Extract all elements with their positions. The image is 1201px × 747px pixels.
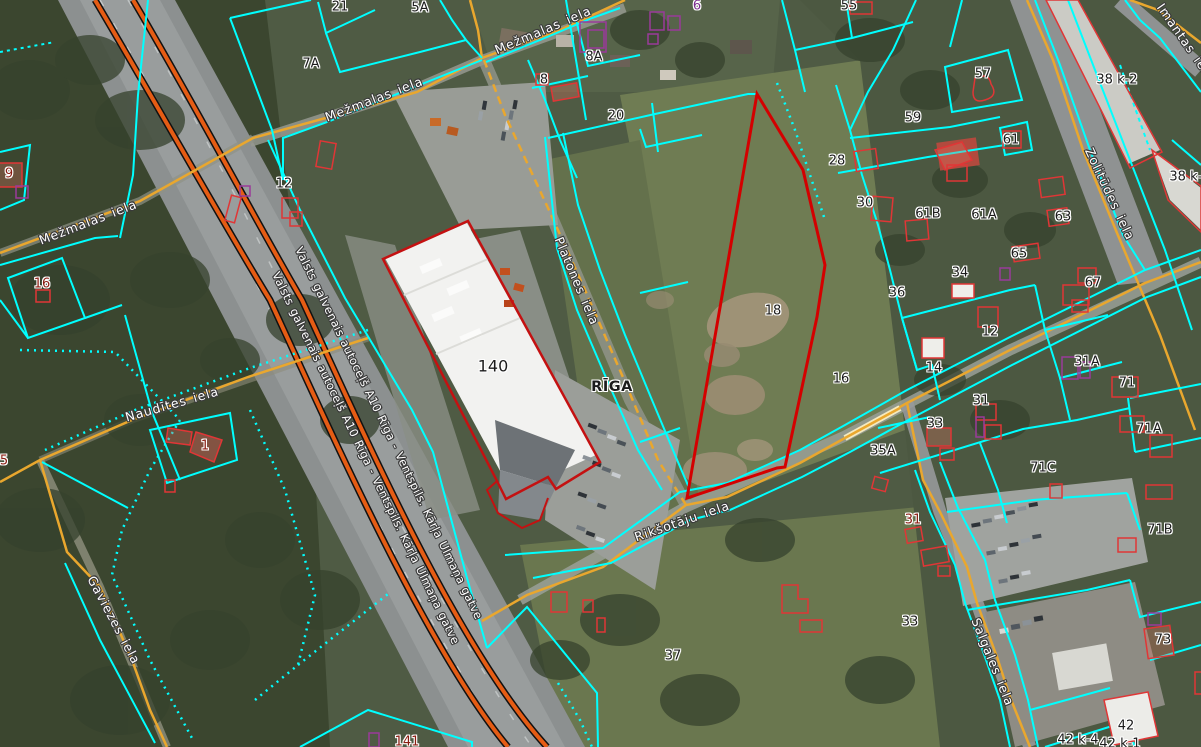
parcel-label-7a: 7A — [302, 57, 319, 72]
parcel-label-61: 61 — [1003, 133, 1020, 148]
parcel-label-71c: 71C — [1030, 461, 1056, 476]
parcel-label-12-west: 12 — [276, 177, 293, 192]
parcel-label-71: 71 — [1119, 376, 1136, 391]
satellite-basemap — [0, 0, 1201, 747]
terrain — [0, 0, 1201, 747]
parcel-label-34: 34 — [952, 266, 969, 281]
parcel-label-8a: 8A — [585, 50, 602, 65]
parcel-label-37: 37 — [665, 649, 682, 664]
parcel-label-57: 57 — [975, 67, 992, 82]
city-label-riga: RĪGA — [591, 379, 633, 395]
parcel-label-38k2: 38 k-2 — [1096, 73, 1137, 88]
parcel-label-31-red: 31 — [905, 513, 922, 528]
parcel-label-141: 141 — [395, 735, 420, 747]
parcel-label-38k2-b: 38 k-2 — [1169, 170, 1201, 185]
parcel-label-31: 31 — [973, 394, 990, 409]
parcel-label-140: 140 — [478, 357, 509, 376]
parcel-label-59: 59 — [905, 111, 922, 126]
parcel-label-12-east: 12 — [982, 325, 999, 340]
parcel-label-21: 21 — [332, 0, 349, 15]
parcel-label-35a: 35A — [870, 444, 895, 459]
parcel-label-33-south: 33 — [902, 615, 919, 630]
parcel-label-36: 36 — [889, 286, 906, 301]
parcel-label-42k4: 42 k-4 — [1057, 733, 1098, 747]
parcel-label-33: 33 — [927, 417, 944, 432]
parcel-label-20: 20 — [608, 109, 625, 124]
parcel-label-28: 28 — [829, 154, 846, 169]
parcel-label-71b: 71B — [1147, 523, 1172, 538]
parcel-label-9: 9 — [5, 167, 13, 182]
parcel-label-30: 30 — [857, 196, 874, 211]
map-canvas[interactable]: 21 5A 7A 6 55 8A 8 20 57 59 38 k-2 38 k-… — [0, 0, 1201, 747]
parcel-label-6: 6 — [693, 0, 701, 14]
parcel-label-42k1: 42 k-1 — [1099, 737, 1140, 747]
parcel-label-55: 55 — [841, 0, 858, 14]
parcel-label-1: 1 — [201, 439, 209, 454]
parcel-label-73: 73 — [1155, 633, 1172, 648]
parcel-label-63: 63 — [1055, 210, 1072, 225]
parcel-label-67: 67 — [1085, 276, 1102, 291]
parcel-label-61a: 61A — [971, 208, 996, 223]
parcel-label-5a: 5A — [411, 1, 428, 16]
parcel-label-71a: 71A — [1136, 422, 1161, 437]
parcel-label-42: 42 — [1118, 719, 1135, 734]
parcel-label-18: 18 — [765, 304, 782, 319]
parcel-label-14: 14 — [926, 361, 943, 376]
parcel-label-16-east: 16 — [833, 372, 850, 387]
parcel-label-16-west: 16 — [34, 277, 51, 292]
parcel-label-31a: 31A — [1074, 355, 1099, 370]
parcel-label-65: 65 — [1011, 247, 1028, 262]
parcel-label-5: 5 — [0, 454, 8, 469]
parcel-label-61b: 61B — [915, 207, 940, 222]
parcel-label-8: 8 — [540, 73, 548, 88]
